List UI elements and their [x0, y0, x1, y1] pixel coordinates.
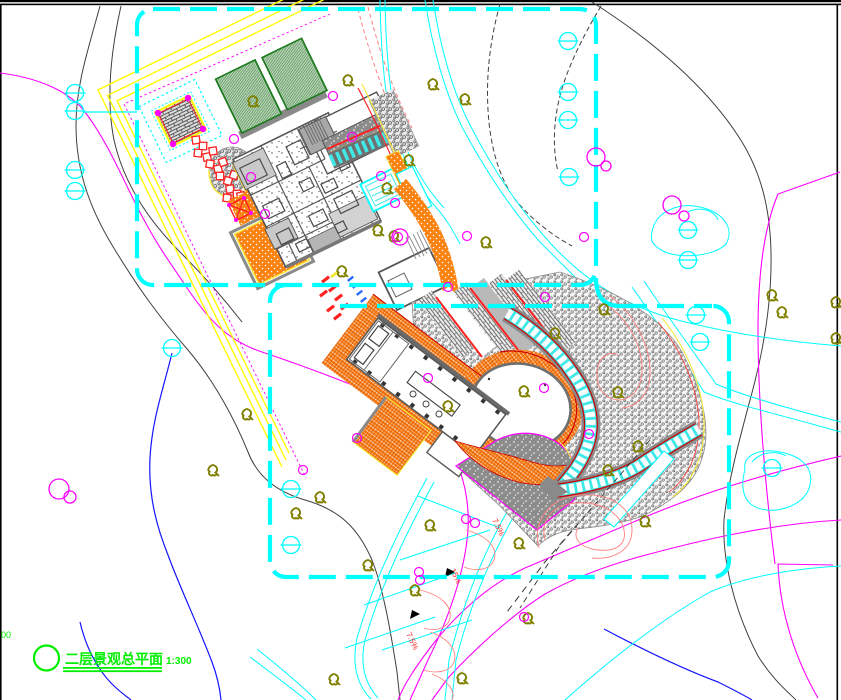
svg-text:00: 00 — [1, 630, 11, 640]
svg-text:二层景观总平面: 二层景观总平面 — [65, 651, 163, 667]
svg-text:1:300: 1:300 — [166, 656, 192, 667]
